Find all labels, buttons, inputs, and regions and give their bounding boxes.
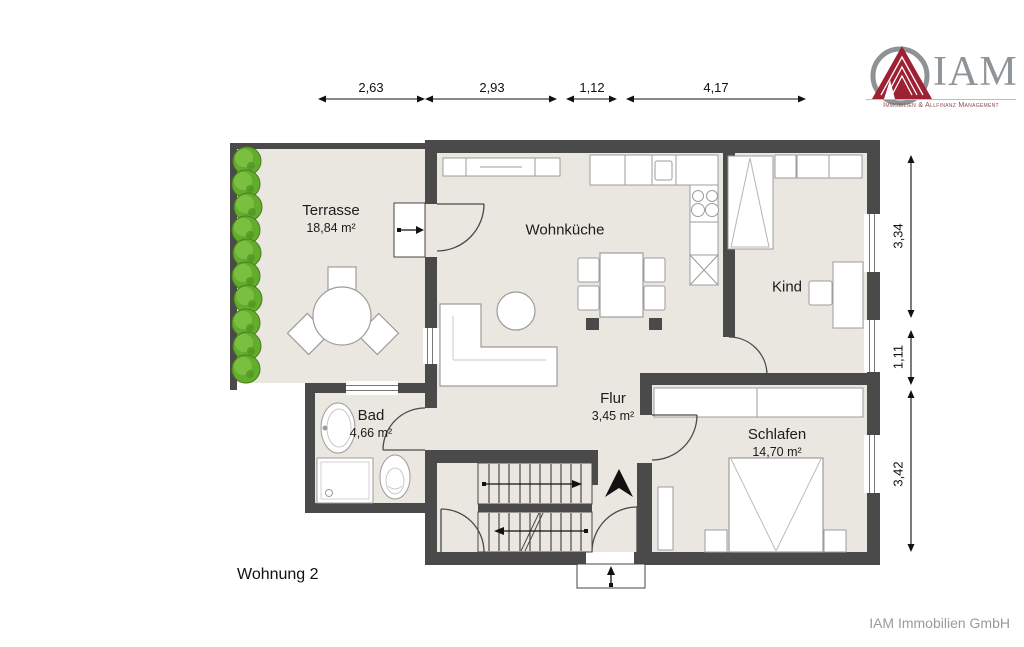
building-entrance	[577, 564, 645, 588]
window-kind-1	[864, 214, 883, 272]
company-name: IAM Immobilien GmbH	[869, 615, 1010, 631]
dim-top-2: 2,93	[479, 80, 504, 95]
dim-top-3: 1,12	[579, 80, 604, 95]
desk	[833, 262, 863, 328]
dimension-arrows-right	[908, 155, 915, 552]
desk-chair	[809, 281, 832, 305]
unit-title: Wohnung 2	[237, 566, 319, 584]
kitchen-sink	[655, 161, 672, 180]
logo-tagline: Immobilien & Allfinanz Management	[866, 99, 1016, 109]
window-kind-2	[864, 320, 883, 372]
logo-mark-icon	[872, 46, 932, 103]
floor-plan-drawing	[0, 0, 1024, 647]
dim-top-1: 2,63	[358, 80, 383, 95]
window-bad	[346, 381, 398, 395]
terrace-door-marker	[394, 203, 425, 257]
dim-top-4: 4,17	[703, 80, 728, 95]
toilet	[380, 455, 410, 499]
dim-right-3: 3,42	[891, 461, 906, 486]
window-schlafen	[864, 435, 883, 493]
dim-right-1: 3,34	[891, 223, 906, 248]
window-livingroom	[423, 328, 439, 364]
shower	[317, 458, 373, 503]
double-bed	[729, 458, 823, 552]
logo-brand-text: IAM	[933, 48, 1018, 96]
dim-right-2: 1,11	[891, 345, 906, 369]
floor-plan-canvas: 2,63 2,93 1,12 4,17 3,34 1,11 3,42 Terra…	[0, 0, 1024, 647]
dimension-arrows-top	[318, 96, 806, 103]
